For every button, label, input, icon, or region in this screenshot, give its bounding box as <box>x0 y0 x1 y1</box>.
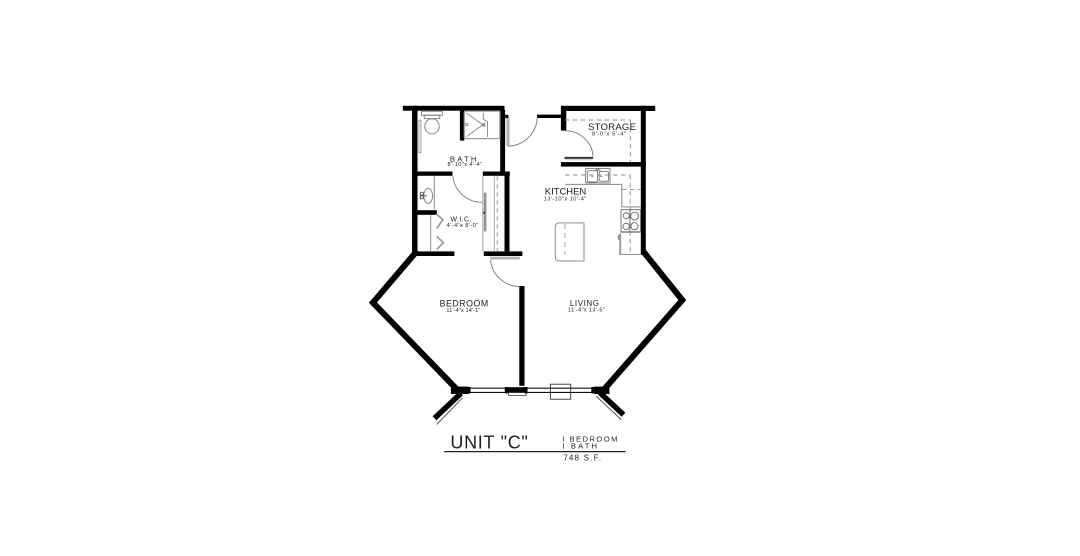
svg-text:13'-10"x 10'-4": 13'-10"x 10'-4" <box>544 197 587 203</box>
svg-text:4'-4"x 8'-0": 4'-4"x 8'-0" <box>447 223 479 229</box>
svg-text:UNIT "C": UNIT "C" <box>450 433 527 453</box>
svg-text:8'-0"x 5'-4": 8'-0"x 5'-4" <box>592 132 626 138</box>
svg-text:748 S.F.: 748 S.F. <box>563 454 601 463</box>
svg-text:I BATH: I BATH <box>562 442 597 451</box>
svg-text:8'-10"x 4'-4": 8'-10"x 4'-4" <box>448 162 483 168</box>
svg-text:11'-4"x 14'-1": 11'-4"x 14'-1" <box>446 308 480 314</box>
svg-text:11'-4"x 13'-5": 11'-4"x 13'-5" <box>568 307 605 313</box>
